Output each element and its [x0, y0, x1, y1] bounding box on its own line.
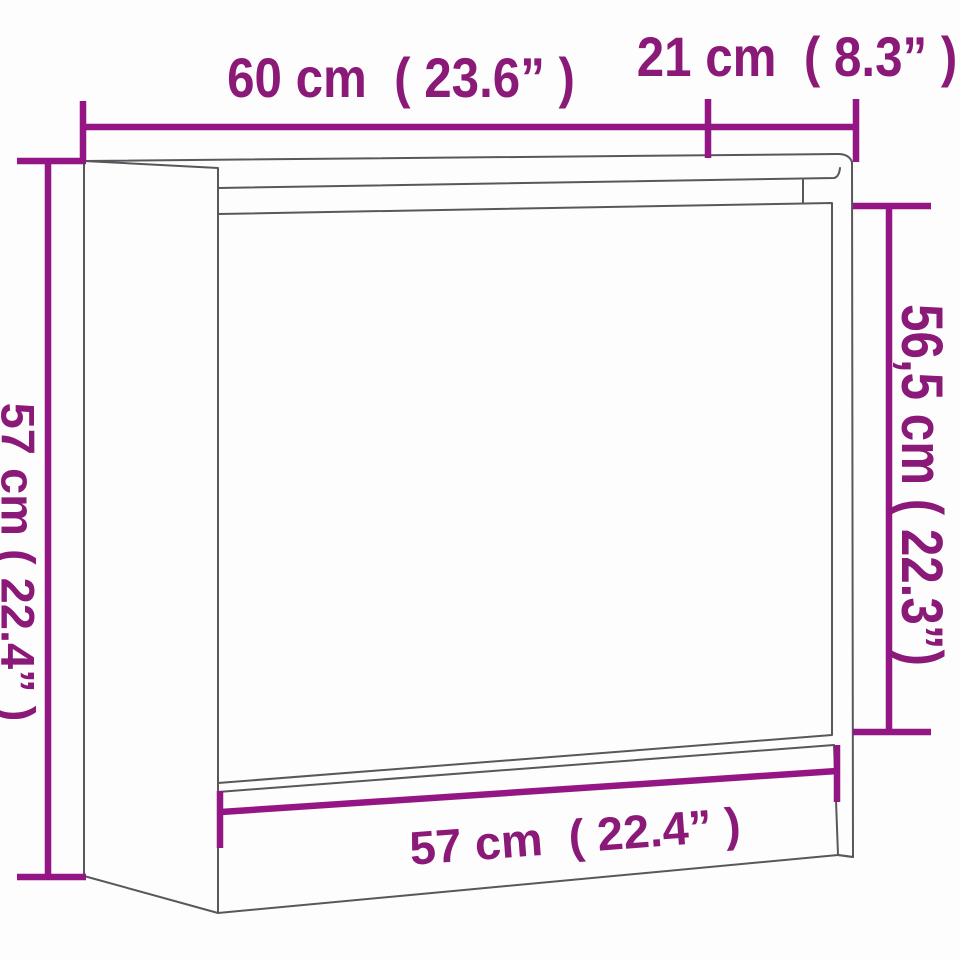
dim-line-bottom-width	[221, 771, 837, 812]
cabinet-right-bottom-edge	[838, 855, 853, 857]
dimension-label-right-height: 56,5 cm ( 22.3”)	[892, 304, 950, 666]
dimension-label-left-height: 57 cm ( 22.4” )	[0, 403, 42, 722]
dimension-label-top-depth: 21 cm ( 8.3” )	[637, 29, 957, 85]
cabinet-left-side-panel	[84, 161, 218, 913]
dimension-label-top-width: 60 cm ( 23.6” )	[227, 50, 575, 106]
cabinet-door-panel	[218, 203, 832, 783]
cabinet-top-panel-front-strip	[218, 168, 840, 188]
shoe-cabinet-dimension-diagram: 60 cm ( 23.6” ) 21 cm ( 8.3” ) 57 cm ( 2…	[0, 0, 960, 960]
